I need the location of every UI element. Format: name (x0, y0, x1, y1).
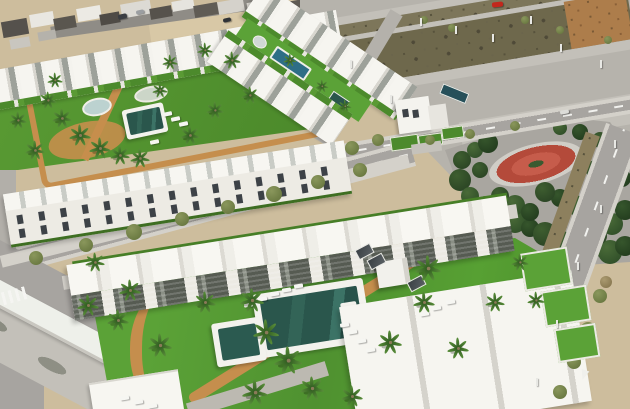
palm-tree (111, 146, 129, 164)
palm-crown (535, 299, 537, 301)
sun-lounger (340, 322, 349, 327)
car (223, 17, 232, 23)
palm-tree (379, 331, 401, 353)
light-pole (455, 26, 457, 34)
palm-tree (149, 334, 171, 356)
palm-crown (423, 301, 426, 304)
sun-lounger (348, 329, 357, 334)
palm-tree (90, 138, 110, 158)
palm-tree (241, 289, 263, 311)
olive-tree (221, 200, 235, 214)
decor-layer (0, 0, 630, 409)
palm-crown (99, 147, 102, 150)
light-pole (614, 140, 616, 148)
palm-tree (512, 254, 528, 270)
palm-crown (231, 59, 233, 61)
shade-structure (366, 253, 386, 271)
light-pole (420, 18, 422, 26)
sun-lounger (446, 299, 455, 304)
olive-tree (556, 26, 564, 34)
sun-lounger (270, 291, 279, 296)
palm-tree (486, 293, 504, 311)
palm-tree (316, 80, 328, 92)
palm-tree (448, 338, 468, 358)
palm-crown (79, 134, 82, 137)
palm-tree (242, 87, 258, 103)
olive-tree (425, 135, 435, 145)
palm-crown (87, 304, 90, 307)
light-pole (350, 60, 352, 68)
palm-crown (159, 89, 161, 91)
olive-tree (29, 251, 43, 265)
palm-tree (86, 253, 104, 271)
olive-tree (311, 175, 325, 189)
palm-tree (10, 112, 26, 128)
palm-tree (416, 256, 440, 280)
palm-tree (48, 73, 62, 87)
sun-lounger (120, 395, 129, 400)
palm-crown (457, 347, 460, 350)
olive-tree (345, 141, 359, 155)
palm-crown (250, 298, 253, 301)
palm-crown (204, 301, 207, 304)
sun-lounger (294, 283, 303, 288)
palm-crown (34, 149, 37, 152)
palm-crown (169, 61, 171, 63)
palm-tree (78, 295, 98, 315)
palm-crown (519, 261, 521, 263)
palm-crown (94, 261, 97, 264)
palm-crown (289, 59, 291, 61)
olive-tree (79, 238, 93, 252)
palm-crown (253, 390, 257, 394)
palm-tree (40, 92, 56, 108)
olive-tree (510, 121, 520, 131)
palm-tree (108, 310, 128, 330)
palm-crown (321, 85, 323, 87)
palm-tree (163, 55, 177, 69)
palm-tree (275, 347, 301, 373)
sun-lounger (163, 111, 173, 116)
sun-lounger (148, 403, 157, 408)
palm-tree (224, 52, 240, 68)
palm-tree (339, 100, 351, 112)
palm-crown (388, 340, 391, 343)
olive-tree (604, 36, 612, 44)
palm-tree (53, 109, 71, 127)
palm-crown (204, 49, 206, 51)
palm-tree (120, 280, 140, 300)
light-pole (560, 44, 562, 52)
palm-crown (61, 117, 64, 120)
palm-crown (351, 395, 354, 398)
olive-tree (126, 224, 142, 240)
palm-crown (189, 134, 192, 137)
palm-tree (243, 380, 267, 404)
car (492, 1, 503, 7)
light-pole (600, 205, 602, 213)
palm-crown (158, 343, 161, 346)
palm-tree (70, 125, 90, 145)
palm-crown (129, 289, 132, 292)
lawn-panel (540, 285, 591, 328)
palm-tree (181, 126, 199, 144)
light-pole (600, 60, 602, 68)
palm-crown (117, 319, 120, 322)
olive-tree (465, 129, 475, 139)
olive-tree (266, 186, 282, 202)
sun-lounger (171, 116, 181, 121)
palm-tree (528, 292, 544, 308)
light-pole (492, 34, 494, 42)
car (560, 109, 570, 115)
light-pole (536, 378, 538, 386)
palm-tree (284, 54, 296, 66)
palm-tree (26, 141, 44, 159)
olive-tree (521, 16, 529, 24)
aerial-render-scene (0, 0, 630, 409)
palm-tree (301, 377, 323, 399)
sun-lounger (366, 347, 375, 352)
palm-tree (153, 83, 167, 97)
palm-tree (131, 149, 149, 167)
olive-tree (553, 385, 567, 399)
palm-crown (494, 301, 497, 304)
olive-tree (175, 212, 189, 226)
palm-crown (310, 386, 313, 389)
sun-lounger (282, 287, 291, 292)
sun-lounger (357, 338, 366, 343)
palm-crown (344, 105, 346, 107)
palm-tree (195, 292, 215, 312)
palm-crown (119, 154, 122, 157)
car (136, 9, 145, 15)
sun-lounger (150, 139, 160, 144)
palm-crown (249, 94, 251, 96)
palm-tree (414, 292, 434, 312)
light-pole (556, 320, 558, 328)
palm-crown (214, 109, 216, 111)
olive-tree (593, 289, 607, 303)
palm-crown (54, 79, 56, 81)
palm-crown (264, 330, 268, 334)
sun-lounger (134, 399, 143, 404)
palm-tree (198, 43, 212, 57)
palm-tree (207, 102, 223, 118)
palm-crown (426, 266, 430, 270)
light-pole (530, 16, 532, 24)
palm-crown (47, 99, 49, 101)
olive-tree (372, 134, 384, 146)
light-pole (577, 262, 579, 270)
palm-tree (342, 386, 362, 406)
palm-tree (254, 320, 278, 344)
light-pole (390, 95, 392, 103)
palm-crown (286, 358, 290, 362)
olive-tree (353, 163, 367, 177)
palm-crown (17, 119, 19, 121)
palm-crown (139, 157, 142, 160)
dry-tree (600, 276, 612, 288)
car (118, 13, 128, 20)
lawn-panel (554, 323, 601, 363)
